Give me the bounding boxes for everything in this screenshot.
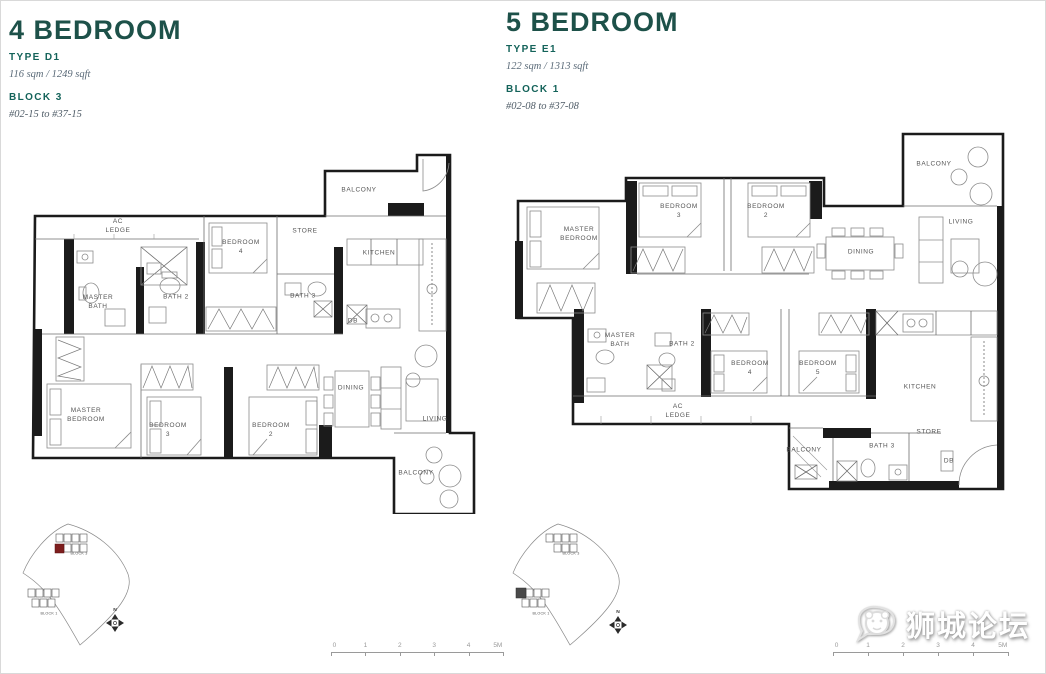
room-label-master-bath-4br: MASTER BATH: [83, 294, 114, 312]
room-label-balcony-top-5br: BALCONY: [916, 161, 951, 170]
room-label-bedroom3-5br: BEDROOM 3: [660, 203, 698, 221]
scale-tick-5: 5M: [493, 642, 502, 649]
scale-tick-0: 0: [835, 642, 839, 649]
north-label-left: N: [113, 607, 117, 612]
north-label-right: N: [616, 609, 620, 614]
plan-title-4br: 4 BEDROOM: [9, 17, 182, 44]
scale-tick-2: 2: [398, 642, 402, 649]
key-block1-label-left: BLOCK 1: [40, 612, 57, 616]
plan-units-5br: #02-08 to #37-08: [506, 101, 679, 112]
floor-plan-drawing-4br: [29, 139, 489, 514]
plan-type-5br: TYPE E1: [506, 44, 679, 55]
plan-units-4br: #02-15 to #37-15: [9, 109, 182, 120]
scale-tick-0: 0: [333, 642, 337, 649]
plan-type-4br: TYPE D1: [9, 52, 182, 63]
plan-area-5br: 122 sqm / 1313 sqft: [506, 61, 679, 72]
plan-title-5br: 5 BEDROOM: [506, 9, 679, 36]
site-key-4br: [16, 519, 166, 649]
room-label-kitchen-5br: KITCHEN: [904, 384, 937, 393]
room-label-master-bedroom-5br: MASTER BEDROOM: [560, 226, 598, 244]
header-4-bedroom: 4 BEDROOM TYPE D1 116 sqm / 1249 sqft BL…: [9, 17, 182, 120]
room-label-bedroom4-5br: BEDROOM 4: [731, 360, 769, 378]
header-5-bedroom: 5 BEDROOM TYPE E1 122 sqm / 1313 sqft BL…: [506, 9, 679, 112]
room-label-balcony-bottom-4br: BALCONY: [398, 470, 433, 479]
room-label-kitchen-4br: KITCHEN: [363, 250, 396, 259]
room-label-dining-4br: DINING: [338, 385, 364, 394]
room-label-bath2-5br: BATH 2: [669, 341, 695, 350]
north-arrow-icon: [106, 614, 124, 632]
plan-area-4br: 116 sqm / 1249 sqft: [9, 69, 182, 80]
scale-bar-left: 0 1 2 3 4 5M: [331, 642, 503, 660]
room-label-master-bath-5br: MASTER BATH: [605, 332, 636, 350]
scale-tick-4: 4: [467, 642, 471, 649]
key-block3-label-right: BLOCK 3: [562, 552, 579, 556]
room-label-bath3-4br: BATH 3: [290, 293, 316, 302]
floor-plan-sheet: 4 BEDROOM TYPE D1 116 sqm / 1249 sqft BL…: [0, 0, 1046, 674]
highlighted-unit-block1: [516, 588, 526, 598]
highlighted-unit-block3: [55, 544, 64, 553]
plan-block-4br: BLOCK 3: [9, 92, 182, 103]
key-block1-label-right: BLOCK 1: [532, 612, 549, 616]
room-label-bedroom5-5br: BEDROOM 5: [799, 360, 837, 378]
room-label-store-5br: STORE: [916, 429, 941, 438]
room-label-bath3-5br: BATH 3: [869, 443, 895, 452]
room-label-db-4br: DB: [348, 318, 358, 327]
lion-logo-icon: [853, 603, 899, 645]
room-label-balcony-bottom-5br: BALCONY: [786, 447, 821, 456]
watermark: 狮城论坛: [853, 603, 1030, 645]
room-label-bath2-4br: BATH 2: [163, 294, 189, 303]
room-label-balcony-top-4br: BALCONY: [341, 187, 376, 196]
site-key-5br: [506, 519, 656, 649]
room-label-bedroom4-4br: BEDROOM 4: [222, 239, 260, 257]
room-label-db-5br: DB: [944, 458, 954, 467]
key-block3-label-left: BLOCK 3: [70, 552, 87, 556]
room-label-bedroom3-4br: BEDROOM 3: [149, 422, 187, 440]
watermark-text: 狮城论坛: [906, 603, 1030, 645]
room-label-bedroom2-5br: BEDROOM 2: [747, 203, 785, 221]
room-label-store-4br: STORE: [292, 228, 317, 237]
room-label-living-4br: LIVING: [423, 416, 448, 425]
floor-plan-drawing-5br: [511, 131, 1011, 516]
room-label-dining-5br: DINING: [848, 249, 874, 258]
north-arrow-icon: [609, 616, 627, 634]
room-label-master-bedroom-4br: MASTER BEDROOM: [67, 407, 105, 425]
plan-block-5br: BLOCK 1: [506, 84, 679, 95]
room-label-bedroom2-4br: BEDROOM 2: [252, 422, 290, 440]
room-label-ac-ledge-5br: AC LEDGE: [666, 403, 691, 421]
room-label-ac-ledge-4br: AC LEDGE: [106, 218, 131, 236]
scale-tick-1: 1: [364, 642, 368, 649]
room-label-living-5br: LIVING: [949, 219, 974, 228]
scale-tick-3: 3: [432, 642, 436, 649]
